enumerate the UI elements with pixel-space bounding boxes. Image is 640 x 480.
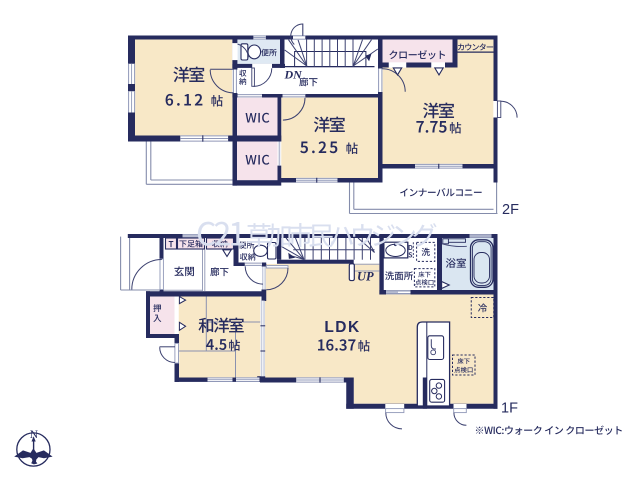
- svg-text:2F: 2F: [502, 202, 519, 218]
- svg-text:1F: 1F: [501, 401, 518, 417]
- svg-text:UP: UP: [357, 270, 374, 284]
- svg-text:LDK: LDK: [324, 319, 360, 336]
